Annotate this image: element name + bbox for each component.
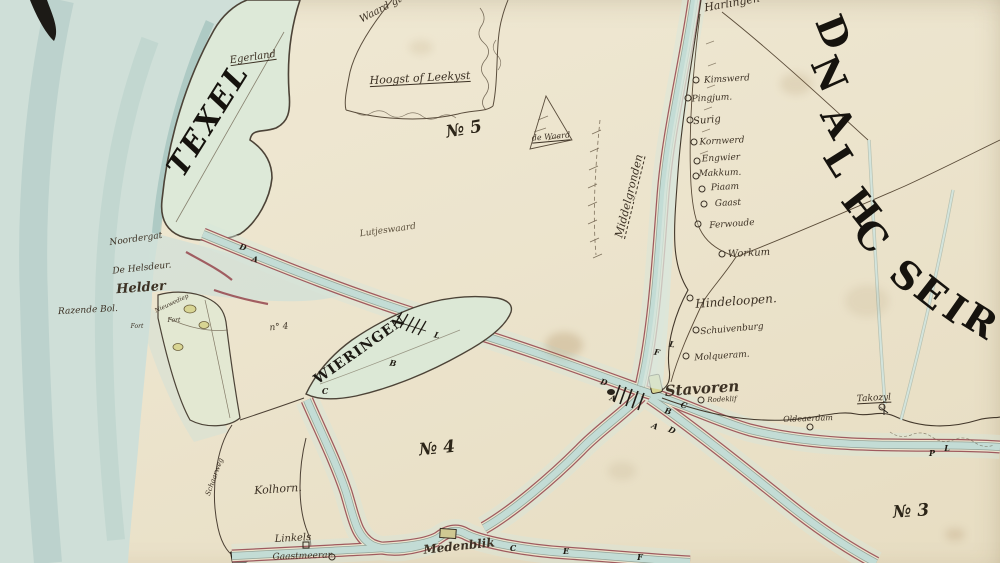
label-wieringen: WIERINGEN xyxy=(312,313,409,387)
canal-letter-P: P xyxy=(929,449,935,457)
label-no4-groot: № 4 xyxy=(418,439,456,460)
village-marker xyxy=(693,327,700,334)
label-lutjeswaard: Lutjeswaard xyxy=(359,223,416,240)
label-ferwoude: Ferwoude xyxy=(709,219,755,231)
village-marker xyxy=(807,424,814,431)
label-piaam: Piaam xyxy=(711,183,740,193)
canal-letter-L: L xyxy=(669,340,676,349)
label-fort-west: Fort xyxy=(131,324,144,330)
canal-letter-E: E xyxy=(563,547,569,555)
label-middelgronden: Middelgronden xyxy=(613,153,644,239)
canal-letter-C: C xyxy=(680,400,688,409)
canal-letter-D: D xyxy=(667,425,677,435)
label-workum: Workum xyxy=(728,248,771,260)
village-marker xyxy=(685,95,692,102)
village-marker xyxy=(693,173,700,180)
village-marker xyxy=(329,554,336,561)
canal-letter-D: D xyxy=(239,242,248,252)
label-rodeklif: Rodeklif xyxy=(707,396,737,404)
label-engwier: Engwier xyxy=(702,154,741,165)
village-marker xyxy=(699,186,706,193)
village-marker xyxy=(695,221,702,228)
label-fort-oost: Fort xyxy=(168,318,181,324)
label-de-helsdeur: De Helsdeur. xyxy=(112,261,172,276)
village-marker xyxy=(687,117,694,124)
canal-letter-F: F xyxy=(654,348,661,357)
arc-letter-L: L xyxy=(817,140,863,183)
label-helder: Helder xyxy=(116,280,166,296)
canal-letter-C: C xyxy=(510,544,516,552)
label-harlingen: Harlingen xyxy=(703,0,760,13)
canal-letter-A: A xyxy=(251,254,259,263)
label-oldeaerdam: Oldeaerdam xyxy=(783,414,833,424)
label-schuivenburg: Schuivenburg xyxy=(700,323,764,338)
arc-letter-D: D xyxy=(809,10,857,55)
village-marker xyxy=(719,251,726,258)
label-no5: № 5 xyxy=(445,118,484,141)
village-marker xyxy=(691,139,698,146)
canal-letter-F: F xyxy=(637,553,643,561)
label-razende-bol: Razende Bol. xyxy=(58,305,118,317)
canal-letter-L: L xyxy=(944,444,950,452)
canal-letter-L: L xyxy=(433,330,441,339)
label-waardgt: Waard gt xyxy=(358,0,403,25)
label-kimswerd: Kimswerd xyxy=(704,74,750,85)
canal-letter-B: B xyxy=(664,406,673,415)
arc-letter-N: N xyxy=(805,50,854,97)
label-n4-klein: n° 4 xyxy=(269,323,289,334)
label-pingjum: Pingjum. xyxy=(692,93,733,104)
village-marker xyxy=(879,404,886,411)
label-no3: № 3 xyxy=(892,502,929,521)
label-nieuwediep: Nieuwediep xyxy=(154,294,190,315)
label-hoogst-of-leekyst: Hoogst of Leekyst xyxy=(369,70,470,86)
canal-letter-A: A xyxy=(609,393,617,402)
label-gaast: Gaast xyxy=(715,199,742,209)
label-egerland: Egerland xyxy=(229,50,276,66)
label-medenblik: Medenblik xyxy=(423,536,495,555)
label-kornwerd: Kornwerd xyxy=(699,136,745,147)
map-canvas: TEXELWIERINGENEgerlandWaard gtHoogst of … xyxy=(0,0,1000,563)
label-hindeloopen: Hindeloopen. xyxy=(695,292,777,310)
village-marker xyxy=(698,397,705,404)
village-marker xyxy=(687,295,694,302)
label-layer: TEXELWIERINGENEgerlandWaard gtHoogst of … xyxy=(0,0,1000,563)
canal-letter-B: B xyxy=(389,358,397,367)
canal-letter-A: A xyxy=(650,421,659,431)
label-gaastmeeran: Gaastmeeran xyxy=(272,551,333,562)
arc-letter-A: A xyxy=(814,100,861,144)
label-molqueram: Molqueram. xyxy=(694,351,750,364)
site-marker xyxy=(303,542,310,549)
canal-letter-C: C xyxy=(322,387,328,395)
canal-letter-D: D xyxy=(600,377,609,387)
label-kolhorn: Kolhorn. xyxy=(254,482,302,496)
label-makkum: Makkum. xyxy=(699,169,742,179)
village-marker xyxy=(694,158,701,165)
label-texel: TEXEL xyxy=(163,58,256,182)
label-de-waard: de Waard xyxy=(532,131,571,142)
village-marker xyxy=(683,353,690,360)
label-takozyl: Takozyl xyxy=(857,394,892,405)
label-schaarweg: Schaarweg xyxy=(205,457,225,497)
village-marker xyxy=(693,77,700,84)
village-marker xyxy=(701,201,708,208)
label-surig: Surig xyxy=(693,115,721,127)
label-noordergat: Noordergat xyxy=(109,232,163,248)
